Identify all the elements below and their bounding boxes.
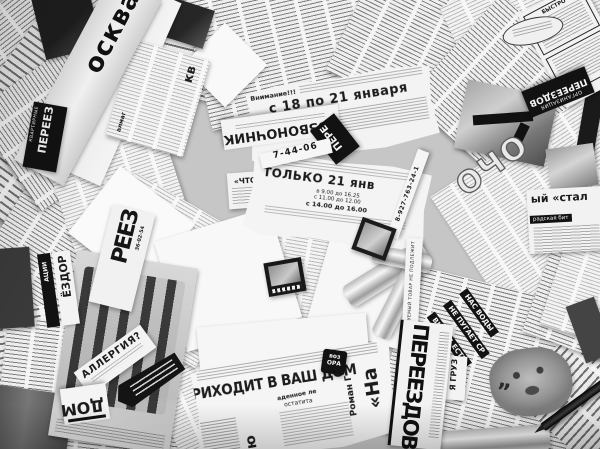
scrap-dom: ДОМ (60, 383, 111, 425)
text-kv: кв (181, 64, 200, 85)
stamp-text (512, 20, 553, 37)
photo-scrap-dark (0, 247, 35, 330)
scrap-stalingrad: ый «стал радская бит (526, 186, 600, 254)
framed-picture-card (263, 257, 306, 297)
text-ya-gruz: Я ГРУЗ (448, 359, 459, 391)
headline-dom: ДОМ (65, 395, 106, 422)
fine-print (279, 402, 353, 447)
dog-nose (525, 385, 540, 396)
text-lyu: лю (243, 434, 263, 449)
card-photo (356, 222, 391, 256)
text-atsii: АЦИИ (41, 261, 51, 282)
text-almag: алмаг (115, 112, 127, 134)
photo-article (545, 143, 598, 191)
big-letters-pereezdov: ПЕРЕЕЗДОВ (396, 323, 433, 449)
subhead-bitva: радская бит (530, 214, 572, 224)
card-photo (268, 262, 301, 287)
fine-print (200, 417, 242, 449)
card-caption (272, 284, 302, 293)
headline-na: «На (359, 366, 387, 410)
dog-eye (512, 372, 520, 380)
fine-print (533, 224, 600, 253)
newspaper-collage: осква кв алмаг КВАРТИРНЫЕ ПЕРЕЕЗ Внимани… (0, 0, 600, 449)
dog-eye (536, 366, 544, 374)
headline-stal: ый «стал (531, 189, 600, 206)
badge-voz-ora: воз ОРА (320, 348, 347, 375)
